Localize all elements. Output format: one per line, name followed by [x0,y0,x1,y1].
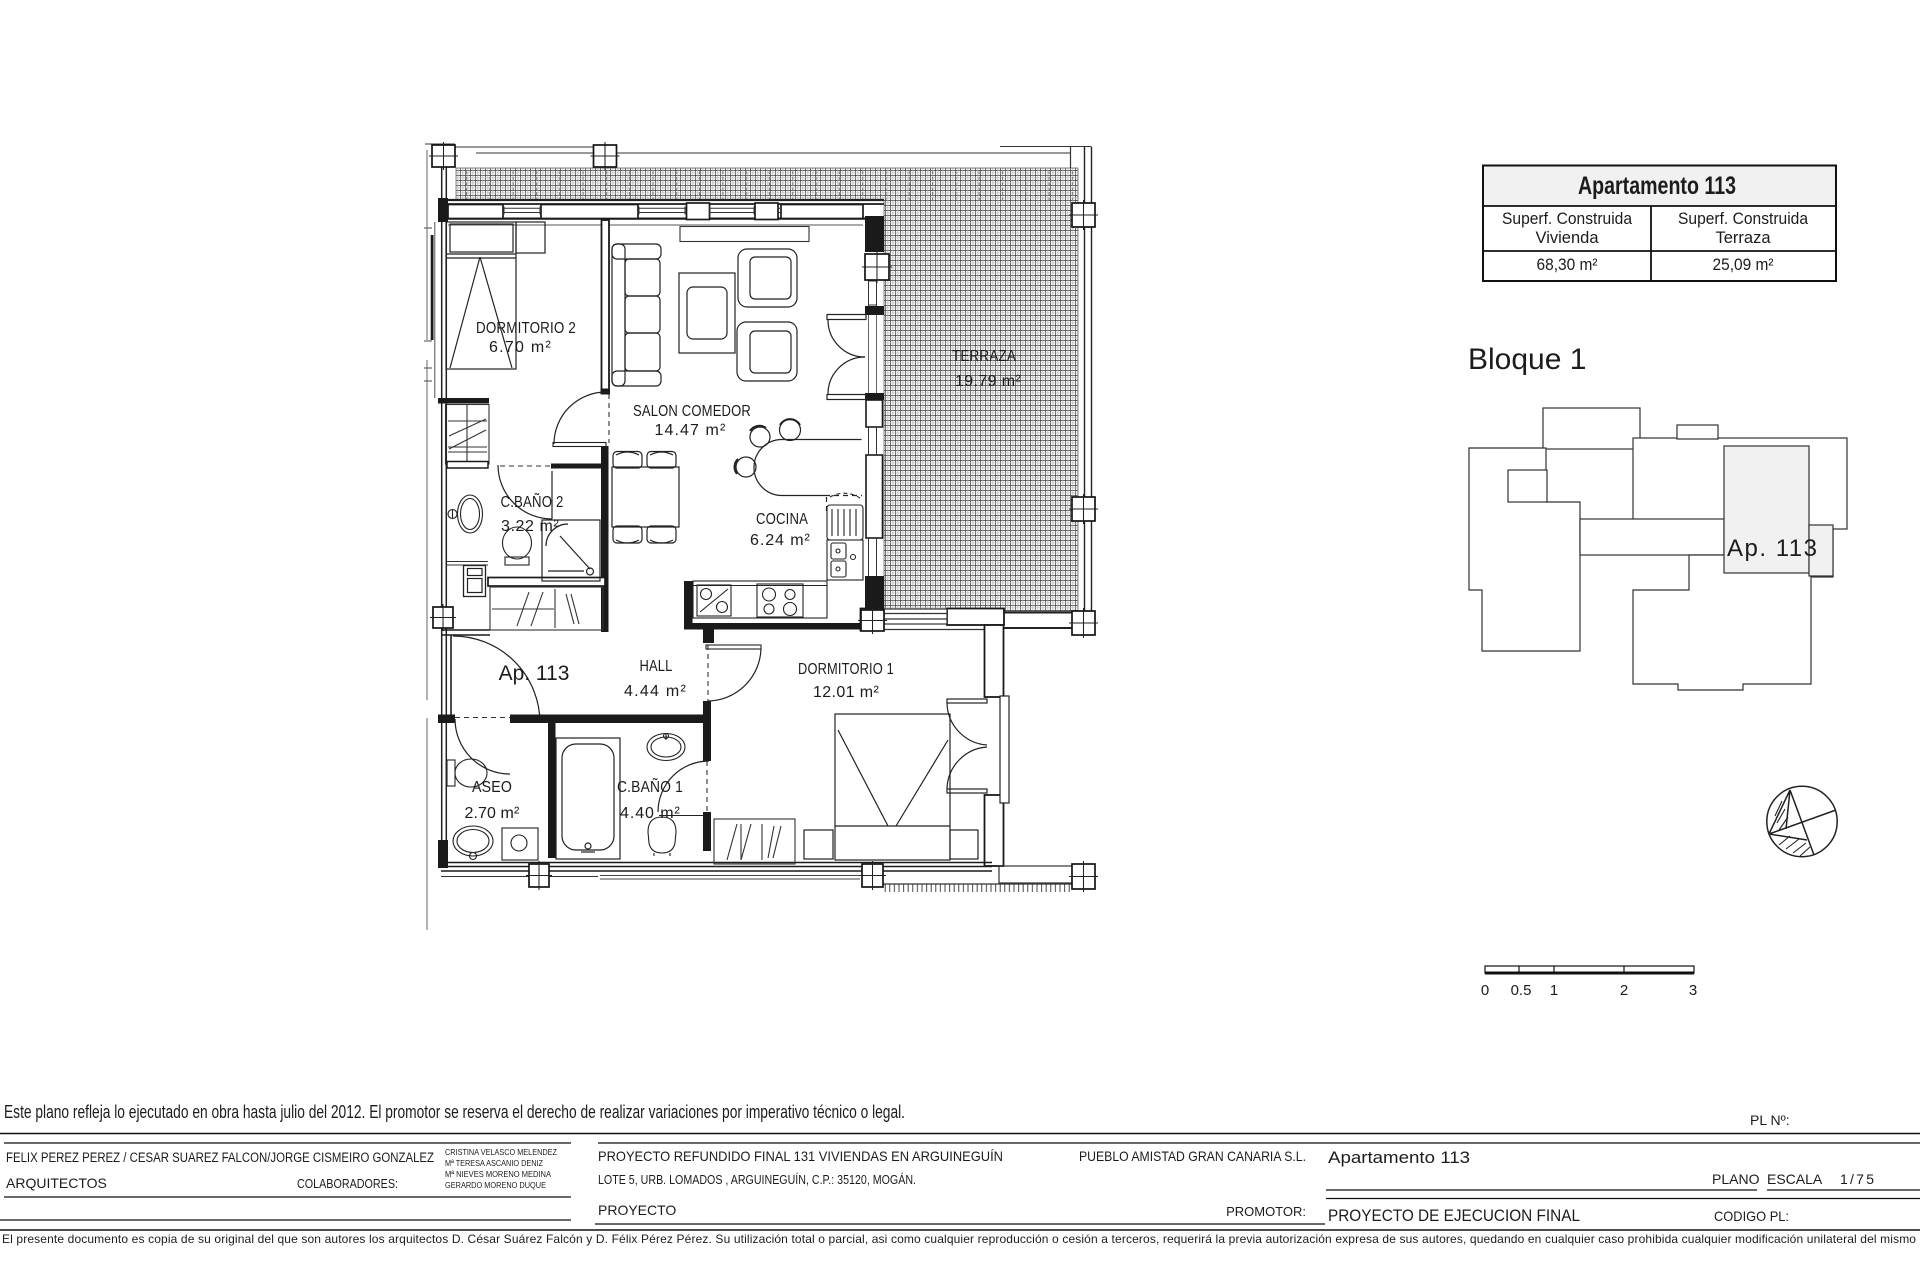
svg-text:ARQUITECTOS: ARQUITECTOS [6,1175,107,1191]
svg-text:68,30 m²: 68,30 m² [1537,255,1598,274]
svg-text:6.70 m²: 6.70 m² [489,339,551,356]
svg-text:Terraza: Terraza [1715,229,1771,247]
svg-text:PROYECTO REFUNDIDO FINAL 131 V: PROYECTO REFUNDIDO FINAL 131 VIVIENDAS E… [598,1148,1003,1164]
svg-text:COCINA: COCINA [756,511,808,528]
svg-text:0: 0 [1481,982,1489,999]
svg-text:El presente documento es copia: El presente documento es copia de su ori… [2,1232,1916,1246]
svg-text:2: 2 [1620,982,1628,999]
svg-text:FELIX PEREZ PEREZ / CESAR SUAR: FELIX PEREZ PEREZ / CESAR SUAREZ FALCON/… [6,1150,434,1165]
svg-text:ESCALA: ESCALA [1767,1171,1823,1187]
svg-text:CODIGO PL:: CODIGO PL: [1714,1208,1789,1224]
svg-text:ASEO: ASEO [472,779,512,796]
svg-text:1/75: 1/75 [1840,1171,1874,1187]
svg-text:Superf. Construida: Superf. Construida [1502,210,1633,228]
svg-text:12.01 m²: 12.01 m² [813,684,879,701]
svg-text:Este plano refleja lo ejecutad: Este plano refleja lo ejecutado en obra … [4,1102,905,1122]
svg-text:Bloque 1: Bloque 1 [1468,343,1586,376]
svg-text:DORMITORIO 2: DORMITORIO 2 [476,320,576,337]
svg-text:2.70 m²: 2.70 m² [465,805,520,822]
svg-text:4.44 m²: 4.44 m² [624,683,686,700]
svg-text:14.47 m²: 14.47 m² [655,422,726,439]
svg-text:Superf. Construida: Superf. Construida [1678,210,1809,228]
svg-text:Vivienda: Vivienda [1536,229,1600,247]
svg-text:3: 3 [1689,982,1697,999]
svg-text:PROMOTOR:: PROMOTOR: [1226,1204,1306,1219]
svg-text:Apartamento 113: Apartamento 113 [1328,1148,1470,1167]
svg-text:1: 1 [1550,982,1558,999]
svg-text:Mª TERESA ASCANIO DENIZ: Mª TERESA ASCANIO DENIZ [445,1158,543,1168]
svg-text:Ap. 113: Ap. 113 [499,662,570,685]
svg-text:25,09 m²: 25,09 m² [1713,255,1774,274]
svg-text:Mª NIEVES MORENO MEDINA: Mª NIEVES MORENO MEDINA [445,1169,551,1179]
svg-text:4.40 m²: 4.40 m² [620,805,680,822]
svg-text:LOTE 5, URB. LOMADOS , ARGUINE: LOTE 5, URB. LOMADOS , ARGUINEGUÍN, C.P.… [598,1172,916,1187]
svg-text:PL Nº:: PL Nº: [1750,1112,1790,1128]
svg-text:6.24 m²: 6.24 m² [750,532,810,549]
svg-text:COLABORADORES:: COLABORADORES: [297,1177,398,1191]
svg-text:Ap. 113: Ap. 113 [1727,535,1817,562]
svg-text:DORMITORIO 1: DORMITORIO 1 [798,661,894,678]
svg-text:0.5: 0.5 [1511,982,1532,999]
svg-text:C.BAÑO 2: C.BAÑO 2 [501,491,564,511]
svg-text:TERRAZA: TERRAZA [952,348,1016,365]
svg-text:CRISTINA VELASCO MELENDEZ: CRISTINA VELASCO MELENDEZ [445,1147,557,1157]
svg-text:C.BAÑO 1: C.BAÑO 1 [617,776,683,796]
svg-text:PROYECTO: PROYECTO [598,1202,676,1218]
svg-text:Apartamento 113: Apartamento 113 [1578,172,1736,200]
svg-text:PROYECTO DE EJECUCION FINAL: PROYECTO DE EJECUCION FINAL [1328,1206,1580,1225]
svg-text:3.22 m²: 3.22 m² [501,518,559,535]
svg-text:GERARDO MORENO DUQUE: GERARDO MORENO DUQUE [445,1180,546,1190]
svg-text:19.79 m²: 19.79 m² [955,373,1021,390]
svg-text:PUEBLO AMISTAD GRAN CANARIA S.: PUEBLO AMISTAD GRAN CANARIA S.L. [1079,1148,1306,1164]
svg-text:PLANO: PLANO [1712,1171,1760,1187]
svg-text:HALL: HALL [640,658,673,675]
svg-text:SALON COMEDOR: SALON COMEDOR [633,403,751,420]
